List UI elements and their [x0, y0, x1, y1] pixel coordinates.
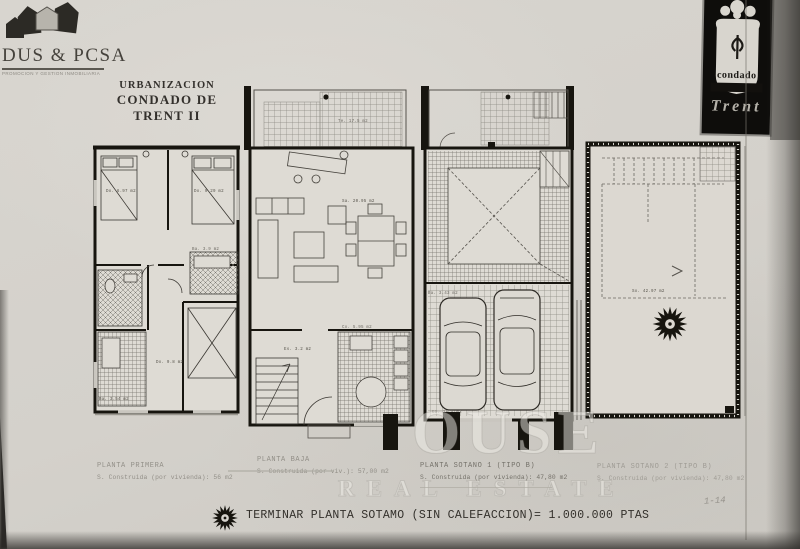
agency-tagline: PROMOCION Y GESTION INMOBILIARIA	[2, 71, 132, 76]
car	[440, 298, 486, 410]
crest-plume-icon	[720, 0, 756, 19]
plan-planta-sotano-1: Ba. 3.43 m2 Ga. 26.4 m2	[425, 90, 572, 422]
room-label: Do. 9.8 m2	[156, 361, 183, 365]
agency-name: DUS & PCSA	[2, 45, 132, 67]
caption-planta-primera: PLANTA PRIMERA S. Construida (por vivien…	[97, 462, 233, 481]
paper-crease	[745, 0, 747, 540]
room-label: Ba. 3.54 m2	[99, 398, 129, 402]
caption-planta-sotano-2: PLANTA SOTANO 2 (TIPO B) S. Construida (…	[597, 463, 744, 482]
plan-planta-primera: Do. 6.97 m2 Do. 9.29 m2 Ba. 3.9 m2 Ba. 3…	[93, 146, 240, 415]
footer-note: TERMINAR PLANTA SOTAMO (SIN CALEFACCION)…	[246, 509, 649, 522]
plan-planta-sotano-2: So. 42.97 m2	[588, 144, 745, 416]
floorplans-drawing: Do. 6.97 m2 Do. 9.29 m2 Ba. 3.9 m2 Ba. 3…	[88, 80, 748, 450]
scan-shadow	[770, 0, 800, 140]
room-label: Sa. 20.95 m2	[342, 200, 375, 204]
room-label: Te. 17.5 m2	[338, 120, 368, 124]
plan-caption: PLANTA BAJA	[257, 456, 389, 464]
car	[494, 290, 540, 410]
caption-rule	[420, 487, 552, 488]
scan-shadow	[0, 531, 800, 549]
room-label: Es. 3.2 m2	[284, 348, 311, 352]
caption-planta-sotano-1: PLANTA SOTANO 1 (TIPO B) S. Construida (…	[420, 462, 567, 481]
room-label: So. 42.97 m2	[632, 290, 665, 294]
room-label: Co. 5.95 m2	[342, 326, 372, 330]
caption-planta-baja: PLANTA BAJA S. Construida (por viv.): 57…	[257, 456, 389, 475]
agency-rule	[2, 68, 104, 70]
footer-star-icon	[210, 503, 240, 533]
plan-caption: PLANTA SOTANO 2 (TIPO B)	[597, 463, 744, 471]
agency-letterhead: DUS & PCSA PROMOCION Y GESTION INMOBILIA…	[2, 2, 132, 76]
plan-area: S. Construida (por vivienda): 56 m2	[97, 474, 233, 481]
plan-area: S. Construida (por vivienda): 47,80 m2	[597, 475, 744, 482]
plan-caption: PLANTA PRIMERA	[97, 462, 233, 470]
plan-area: S. Construida (por vivienda): 47,80 m2	[420, 474, 567, 481]
scanned-floorplan-sheet: DUS & PCSA PROMOCION Y GESTION INMOBILIA…	[0, 0, 800, 549]
room-label: Ba. 3.9 m2	[192, 248, 219, 252]
agency-houses-logo-icon	[2, 2, 102, 42]
room-label: Do. 6.97 m2	[106, 190, 136, 194]
page-mark: 1-14	[704, 495, 726, 506]
caption-rule	[228, 470, 334, 472]
room-label: Do. 9.29 m2	[194, 190, 224, 194]
plan-planta-baja: Te. 17.5 m2 Sa. 20.95 m2	[250, 90, 413, 438]
plan-caption: PLANTA SOTANO 1 (TIPO B)	[420, 462, 567, 470]
